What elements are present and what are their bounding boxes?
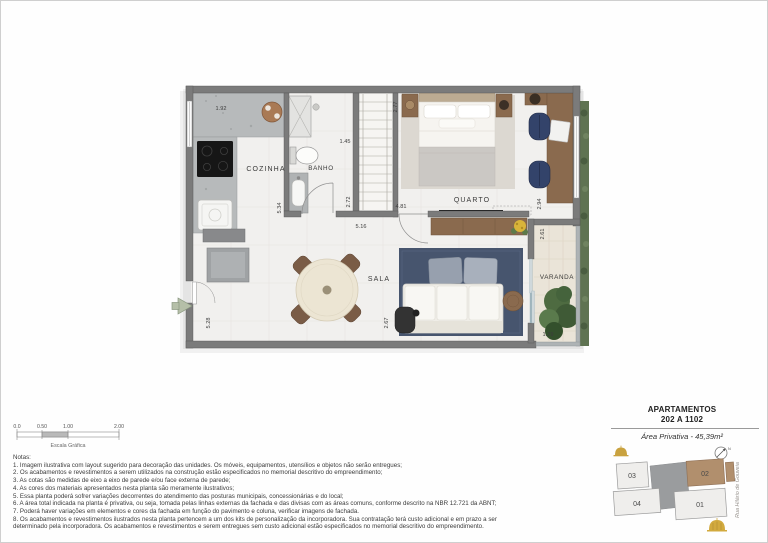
note-item-6: 6. A área total indicada na planta é pri…	[13, 500, 518, 508]
gold-dome-icon	[707, 518, 727, 532]
scale-tick-2: 1.00	[63, 424, 73, 430]
note-item-7: 7. Poderá haver variações em elementos e…	[13, 508, 518, 516]
dim-balcony-side: 2.61	[540, 229, 546, 240]
dim-kitchen-top: 1.92	[216, 106, 227, 112]
notes-block: Notas: 1. Imagem ilustrativa com layout …	[13, 454, 518, 531]
pouf	[464, 257, 498, 284]
note-item-4: 4. As cores dos materiais apresentados n…	[13, 485, 518, 493]
flowers	[514, 220, 526, 232]
notes-title: Notas:	[13, 454, 518, 462]
note-item-3: 3. As cotas são medidas de eixo a eixo d…	[13, 477, 518, 485]
room-label-varanda: VARANDA	[540, 274, 574, 281]
wardrobe	[357, 93, 393, 211]
gold-dome-icon	[614, 446, 629, 457]
north-compass-icon: N	[715, 447, 731, 459]
keyplan-label-04: 04	[633, 501, 641, 508]
dim-bath-side: 2.72	[346, 197, 352, 208]
keyplan-label-02: 02	[701, 471, 709, 478]
dim-balcony-width: 1.29	[543, 332, 554, 338]
desk	[547, 93, 573, 203]
shower-head	[313, 104, 319, 110]
desk-object	[530, 94, 541, 105]
dim-closet-side: 2.77	[393, 102, 399, 113]
dim-kitchen-side: 5.34	[277, 203, 283, 214]
entry-cabinet	[203, 229, 245, 242]
room-label-quarto: QUARTO	[454, 197, 490, 204]
dim-living-width: 5.16	[356, 224, 367, 230]
apartments-title-line2: 202 A 1102	[601, 415, 763, 425]
room-label-sala: SALA	[368, 276, 390, 283]
kitchen-sink	[262, 102, 282, 122]
toilet	[296, 147, 318, 164]
dim-living-side: 5.28	[206, 318, 212, 329]
info-panel: APARTAMENTOS 202 A 1102 Área Privativa -…	[601, 405, 763, 543]
keyplan-label-01: 01	[696, 502, 704, 509]
keyplan-label-03: 03	[628, 473, 636, 480]
room-label-cozinha: COZINHA	[246, 166, 285, 173]
lounge-chair	[395, 307, 415, 333]
scale-bar: 0.0 0.50 1.00 2.00 Escala Gráfica	[13, 424, 124, 449]
note-item-1: 1. Imagem ilustrativa com layout sugerid…	[13, 462, 518, 470]
note-item-8: 8. Os acabamentos e revestimentos ilustr…	[13, 516, 518, 531]
dim-sofa-side: 2.67	[384, 318, 390, 329]
private-area-label: Área Privativa - 45,39m²	[601, 432, 763, 441]
scale-tick-3: 2.00	[114, 424, 124, 430]
side-table	[503, 291, 523, 311]
note-item-5: 5. Essa planta poderá sofrer variações d…	[13, 493, 518, 501]
floorplan-sheet: COZINHA BANHO QUARTO SALA VARANDA 1.92 1…	[0, 0, 768, 543]
keyplan-unit-02	[686, 458, 735, 486]
scale-tick-0: 0.0	[13, 424, 20, 430]
dim-bedroom-side: 2.94	[537, 199, 543, 210]
compass-letter: N	[728, 447, 731, 451]
dim-bath-top: 1.45	[340, 139, 351, 145]
scale-tick-1: 0.50	[37, 424, 47, 430]
scale-caption: Escala Gráfica	[50, 443, 85, 449]
street-label: Rua Hilário de Gouveia	[735, 462, 741, 518]
headboard	[419, 93, 495, 102]
apartments-title-line1: APARTAMENTOS	[601, 405, 763, 415]
note-item-2: 2. Os acabamentos e revestimentos a sere…	[13, 469, 518, 477]
divider	[611, 428, 759, 429]
pouf	[428, 257, 462, 285]
floor-lamp	[413, 310, 420, 317]
cooktop	[197, 141, 233, 177]
dim-bedroom-width: 4.81	[396, 204, 407, 210]
keyplan: N Rua Hilário de Gouveia 03	[601, 444, 759, 542]
room-label-banho: BANHO	[308, 165, 333, 172]
hedge	[580, 101, 589, 346]
